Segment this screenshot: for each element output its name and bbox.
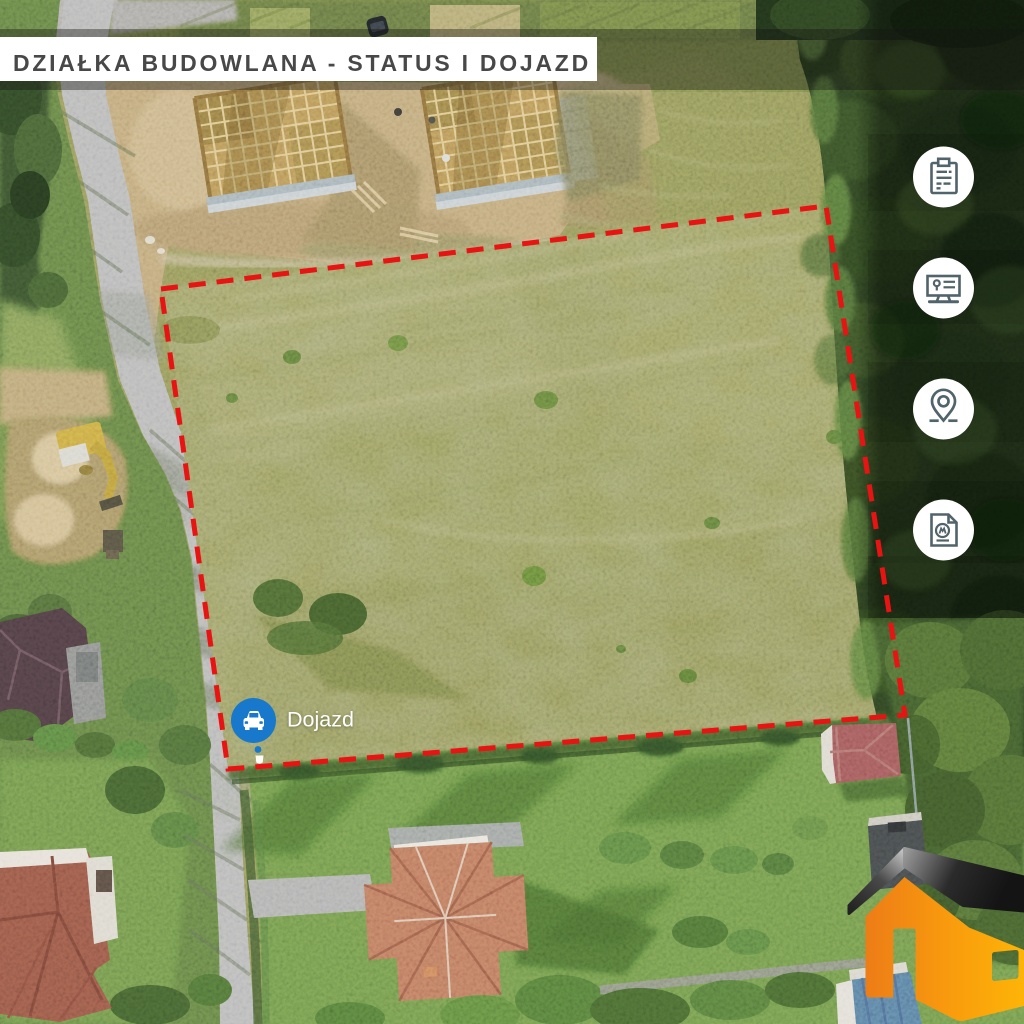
svg-text:Dojazd: Dojazd — [287, 708, 354, 732]
svg-text:DZIAŁKA BUDOWLANA - STATUS I D: DZIAŁKA BUDOWLANA - STATUS I DOJAZD — [13, 50, 591, 76]
